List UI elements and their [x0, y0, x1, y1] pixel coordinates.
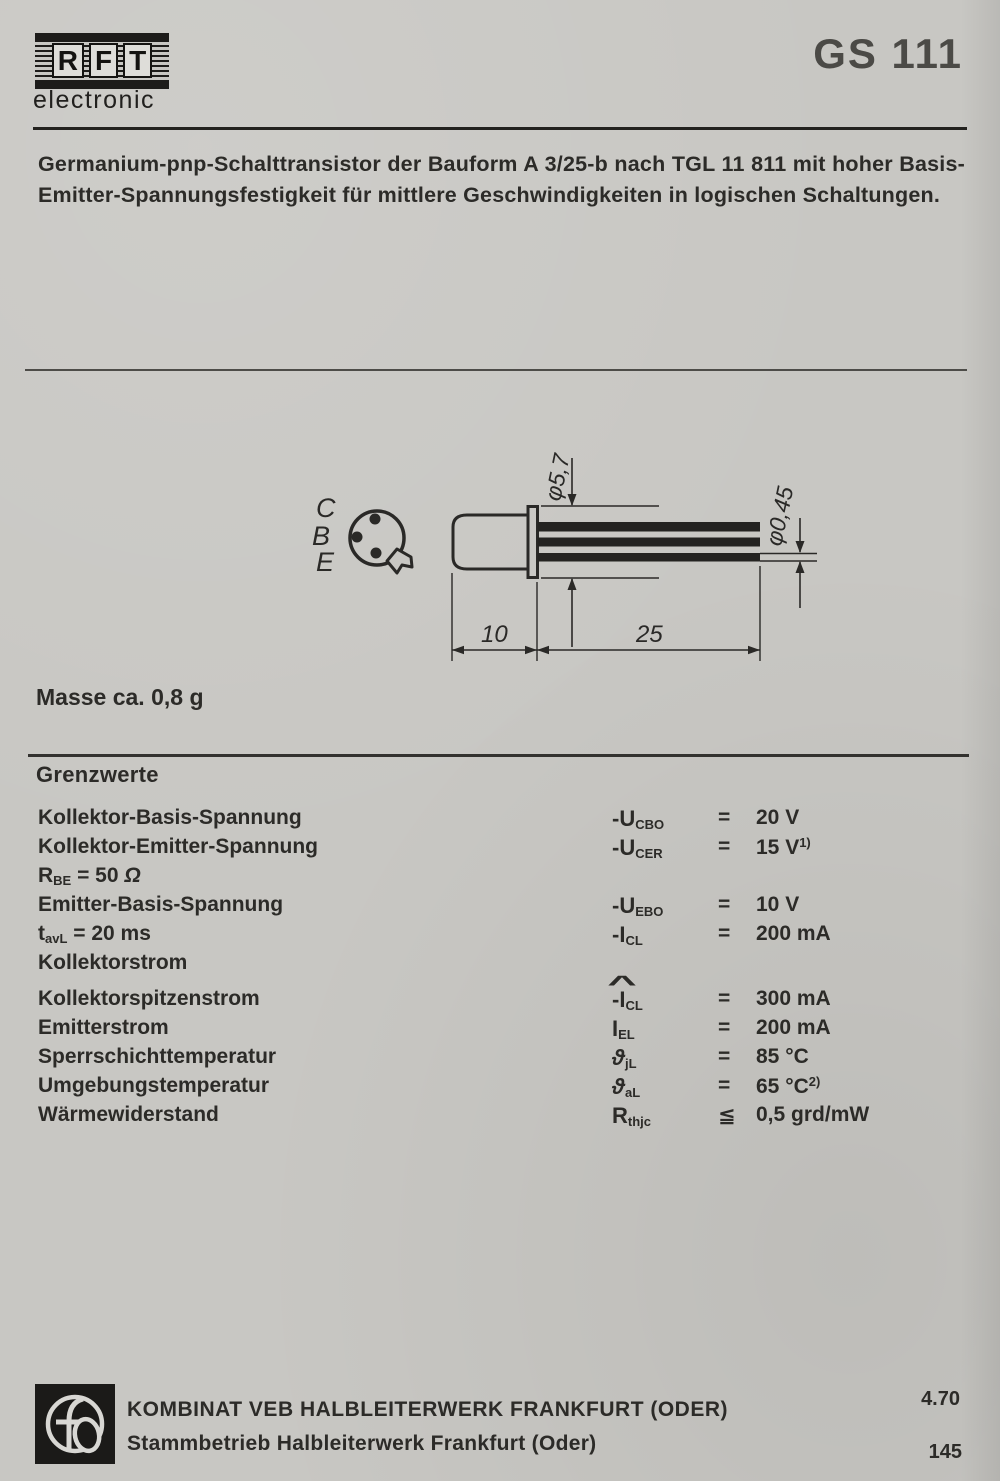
limit-symbol: -UCBO: [612, 806, 718, 832]
package-drawing: C B E φ5,7: [0, 430, 1000, 680]
limit-value: 200 mA: [756, 922, 968, 946]
rft-logo-top-bar: [35, 33, 169, 40]
limits-row: EmitterstromIEL=200 mA: [38, 1016, 968, 1045]
limits-row: Kollektorspitzenstrom-ICL=300 mA: [38, 987, 968, 1016]
transistor-leads: [538, 522, 761, 562]
limit-value: 0,5 grd/mW: [756, 1103, 968, 1127]
hfo-logo: [35, 1384, 115, 1464]
limits-row: Emitter-Basis-Spannung-UEBO=10 V: [38, 893, 968, 922]
mass-note: Masse ca. 0,8 g: [36, 684, 204, 711]
limit-parameter: Emitter-Basis-Spannung: [38, 893, 612, 917]
limit-symbol: ϑjL: [612, 1045, 718, 1071]
limit-value: 20 V: [756, 806, 968, 830]
footer-page-number: 145: [929, 1441, 962, 1464]
limits-row: RBE = 50 Ω: [38, 864, 968, 893]
limits-row: tavL = 20 ms-ICL=200 mA: [38, 922, 968, 951]
pin-circle-view: [350, 511, 412, 573]
pin-label-c: C: [316, 493, 336, 523]
limits-row: Kollektorstrom: [38, 951, 968, 980]
limit-relation: =: [718, 987, 756, 1011]
description-line-2: Emitter-Spannungsfestigkeit für mittlere…: [38, 180, 965, 211]
limits-row: UmgebungstemperaturϑaL=65 °C2): [38, 1074, 968, 1103]
rft-letter: T: [123, 43, 152, 78]
limit-symbol: ϑaL: [612, 1074, 718, 1100]
limit-value: 300 mA: [756, 987, 968, 1011]
limits-title: Grenzwerte: [36, 762, 159, 788]
divider-rule-limits: [28, 754, 969, 757]
limit-parameter: Wärmewiderstand: [38, 1103, 612, 1127]
limit-value: 85 °C: [756, 1045, 968, 1069]
limits-row: WärmewiderstandRthjc≦0,5 grd/mW: [38, 1103, 968, 1132]
part-number: GS 111: [813, 30, 963, 78]
header-rule: [33, 127, 967, 130]
limit-value: 10 V: [756, 893, 968, 917]
pin-dot-b: [352, 532, 363, 543]
limit-value: 200 mA: [756, 1016, 968, 1040]
limit-symbol: -UEBO: [612, 893, 718, 919]
pin-dot-c: [370, 514, 381, 525]
limit-parameter: Kollektorspitzenstrom: [38, 987, 612, 1011]
limit-relation: =: [718, 893, 756, 917]
transistor-body: [453, 507, 538, 578]
dim-lead-diameter-label: φ0,45: [760, 484, 798, 548]
limit-symbol: Rthjc: [612, 1103, 718, 1129]
limit-symbol: -UCER: [612, 835, 718, 861]
dim-lead-length-label: 25: [635, 621, 663, 648]
description-line-1: Germanium-pnp-Schalttransistor der Baufo…: [38, 149, 965, 180]
limit-symbol: IEL: [612, 1016, 718, 1042]
limit-relation: =: [718, 1074, 756, 1098]
limit-value: 65 °C2): [756, 1074, 968, 1099]
pin-label-e: E: [316, 547, 335, 577]
brand-subtitle: electronic: [33, 86, 155, 115]
limit-value: 15 V1): [756, 835, 968, 860]
limit-relation: =: [718, 1045, 756, 1069]
limit-symbol: -ICL: [612, 922, 718, 948]
limit-relation: =: [718, 922, 756, 946]
limit-relation: =: [718, 835, 756, 859]
limit-relation: =: [718, 1016, 756, 1040]
limit-parameter: Emitterstrom: [38, 1016, 612, 1040]
case-key-tab: [387, 549, 412, 573]
footer-company-line: KOMBINAT VEB HALBLEITERWERK FRANKFURT (O…: [127, 1398, 728, 1422]
limit-parameter: Kollektorstrom: [38, 951, 612, 975]
footer-plant-line: Stammbetrieb Halbleiterwerk Frankfurt (O…: [127, 1432, 596, 1456]
limits-table: Kollektor-Basis-Spannung-UCBO=20 VKollek…: [38, 806, 968, 1132]
limits-row: SperrschichttemperaturϑjL=85 °C: [38, 1045, 968, 1074]
datasheet-page: RFT electronic GS 111 Germanium-pnp-Scha…: [0, 0, 1000, 1481]
divider-rule-top: [25, 369, 967, 371]
limit-parameter: Sperrschichttemperatur: [38, 1045, 612, 1069]
limit-parameter: Kollektor-Emitter-Spannung: [38, 835, 612, 859]
limit-parameter: Umgebungstemperatur: [38, 1074, 612, 1098]
limit-symbol: -ICL: [612, 987, 718, 1013]
limits-row: Kollektor-Emitter-Spannung-UCER=15 V1): [38, 835, 968, 864]
limit-relation: =: [718, 806, 756, 830]
footer-date: 4.70: [921, 1388, 960, 1411]
limit-relation: ≦: [718, 1103, 756, 1128]
rft-letter: F: [89, 43, 118, 78]
rft-logo: RFT: [35, 33, 169, 89]
rft-logo-letters: RFT: [35, 40, 169, 81]
dim-body-length-label: 10: [481, 621, 508, 648]
limits-row: Kollektor-Basis-Spannung-UCBO=20 V: [38, 806, 968, 835]
limit-parameter: RBE = 50 Ω: [38, 864, 612, 888]
rft-letter: R: [52, 43, 84, 78]
limit-parameter: Kollektor-Basis-Spannung: [38, 806, 612, 830]
pin-dot-e: [371, 548, 382, 559]
limit-parameter: tavL = 20 ms: [38, 922, 612, 946]
